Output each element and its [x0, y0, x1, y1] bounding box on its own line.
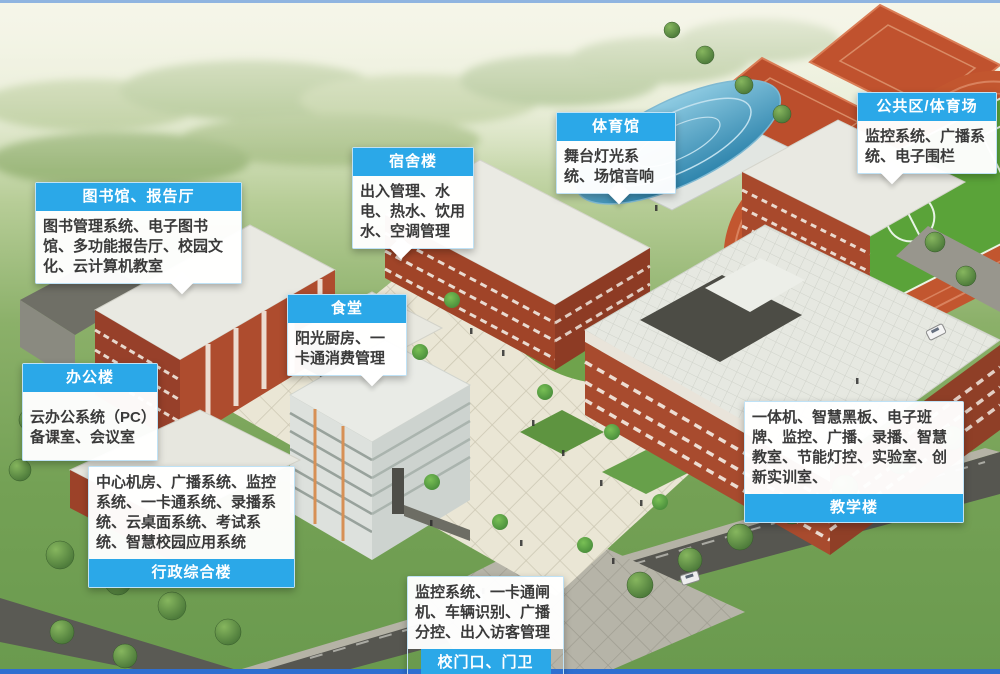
callout-canteen-title: 食堂: [288, 295, 406, 323]
callout-gate-body: 监控系统、一卡通闸机、车辆识别、广播分控、出入访客管理: [408, 577, 563, 649]
callout-office: 办公楼 云办公系统（PC）备课室、会议室: [22, 363, 158, 461]
callout-canteen-body: 阳光厨房、一卡通消费管理: [288, 323, 406, 375]
top-edge-line: [0, 0, 1000, 3]
callout-teaching-title: 教学楼: [745, 494, 963, 522]
callout-admin-complex: 中心机房、广播系统、监控系统、一卡通系统、录播系统、云桌面系统、考试系统、智慧校…: [88, 466, 295, 588]
callout-public-area-body: 监控系统、广播系统、电子围栏: [858, 121, 996, 173]
callout-library-body: 图书管理系统、电子图书馆、多功能报告厅、校园文化、云计算机教室: [36, 211, 241, 283]
callout-gymnasium-body: 舞台灯光系统、场馆音响: [557, 141, 675, 193]
callout-dormitory: 宿舍楼 出入管理、水电、热水、饮用水、空调管理: [352, 147, 474, 249]
callout-gate-title: 校门口、门卫: [421, 649, 551, 674]
callout-dormitory-body: 出入管理、水电、热水、饮用水、空调管理: [353, 176, 473, 248]
callout-public-area: 公共区/体育场 监控系统、广播系统、电子围栏: [857, 92, 997, 174]
callout-admin-complex-body: 中心机房、广播系统、监控系统、一卡通系统、录播系统、云桌面系统、考试系统、智慧校…: [89, 467, 294, 559]
callout-canteen: 食堂 阳光厨房、一卡通消费管理: [287, 294, 407, 376]
callout-admin-complex-title: 行政综合楼: [89, 559, 294, 587]
callout-teaching-body: 一体机、智慧黑板、电子班牌、监控、广播、录播、智慧教室、节能灯控、实验室、创新实…: [745, 402, 963, 494]
callout-office-body: 云办公系统（PC）备课室、会议室: [23, 392, 157, 460]
callout-public-area-title: 公共区/体育场: [858, 93, 996, 121]
callout-dormitory-title: 宿舍楼: [353, 148, 473, 176]
callout-teaching: 一体机、智慧黑板、电子班牌、监控、广播、录播、智慧教室、节能灯控、实验室、创新实…: [744, 401, 964, 523]
callout-library-title: 图书馆、报告厅: [36, 183, 241, 211]
callout-gymnasium: 体育馆 舞台灯光系统、场馆音响: [556, 112, 676, 194]
callout-office-title: 办公楼: [23, 364, 157, 392]
callout-library: 图书馆、报告厅 图书管理系统、电子图书馆、多功能报告厅、校园文化、云计算机教室: [35, 182, 242, 284]
callout-gate: 监控系统、一卡通闸机、车辆识别、广播分控、出入访客管理 校门口、门卫: [407, 576, 564, 674]
callout-gymnasium-title: 体育馆: [557, 113, 675, 141]
campus-overview-diagram: 图书馆、报告厅 图书管理系统、电子图书馆、多功能报告厅、校园文化、云计算机教室 …: [0, 0, 1000, 674]
